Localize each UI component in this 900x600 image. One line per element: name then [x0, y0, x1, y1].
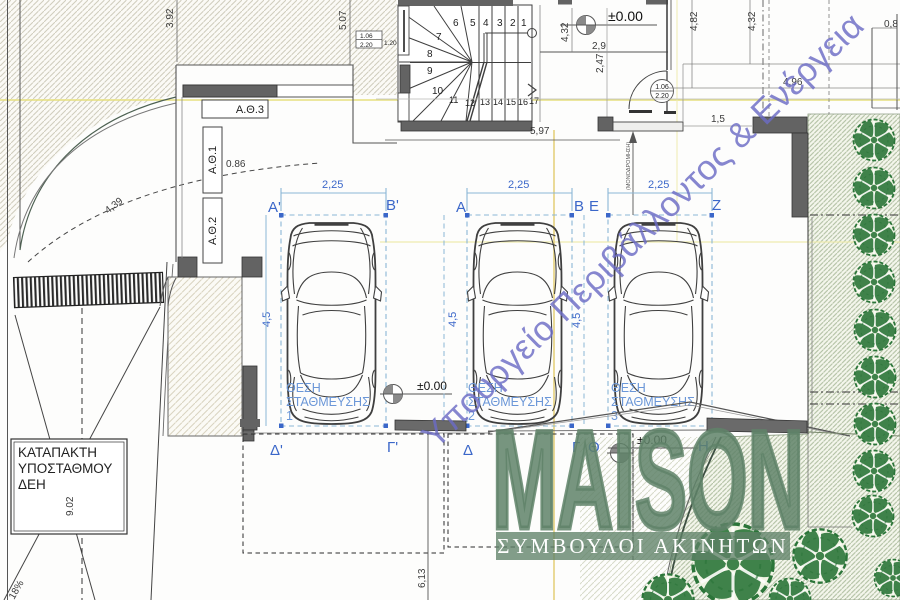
svg-text:7: 7: [436, 32, 442, 43]
svg-text:ΣΤΑΘΜΕΥΣΗΣ: ΣΤΑΘΜΕΥΣΗΣ: [286, 395, 370, 409]
svg-text:12: 12: [465, 98, 475, 108]
svg-text:(ΜΟΝΟΔΡΟΜΗΣΗ): (ΜΟΝΟΔΡΟΜΗΣΗ): [626, 142, 632, 190]
svg-text:1.20: 1.20: [384, 40, 397, 47]
svg-text:13: 13: [480, 97, 490, 107]
svg-text:ΥΠΟΣΤΑΘΜΟΥ: ΥΠΟΣΤΑΘΜΟΥ: [18, 461, 112, 476]
svg-text:5,97: 5,97: [530, 126, 550, 137]
svg-text:Β': Β': [386, 197, 399, 214]
svg-text:Δ': Δ': [270, 442, 283, 459]
svg-text:Α': Α': [268, 199, 281, 216]
svg-text:3.92: 3.92: [165, 8, 176, 28]
svg-text:4,32: 4,32: [747, 11, 758, 31]
svg-text:ΘΕΣΗ: ΘΕΣΗ: [286, 381, 321, 395]
svg-text:9: 9: [427, 66, 433, 77]
svg-text:9.02: 9.02: [65, 496, 76, 516]
svg-text:Α.Θ.2: Α.Θ.2: [207, 217, 219, 245]
svg-text:Ζ: Ζ: [712, 197, 721, 214]
svg-text:Α: Α: [456, 199, 466, 216]
svg-text:11: 11: [449, 95, 458, 105]
svg-text:Δ: Δ: [463, 442, 473, 459]
svg-text:4: 4: [483, 18, 489, 29]
svg-text:±0.00: ±0.00: [417, 379, 447, 393]
svg-text:ΔΕΗ: ΔΕΗ: [18, 477, 46, 492]
svg-text:2,47: 2,47: [595, 53, 606, 73]
svg-text:4,82: 4,82: [689, 11, 700, 31]
svg-text:17: 17: [529, 96, 539, 106]
svg-text:4,32: 4,32: [560, 22, 571, 42]
svg-text:5.07: 5.07: [338, 10, 349, 30]
svg-text:10: 10: [432, 86, 444, 97]
svg-text:1.06: 1.06: [360, 33, 373, 40]
svg-text:5: 5: [470, 18, 476, 29]
svg-text:±0.00: ±0.00: [608, 8, 643, 24]
svg-text:1: 1: [521, 18, 527, 29]
svg-text:Α.Θ.1: Α.Θ.1: [207, 146, 219, 174]
svg-text:2: 2: [510, 18, 516, 29]
svg-text:Ε: Ε: [589, 198, 599, 215]
svg-text:6,13: 6,13: [417, 568, 428, 588]
svg-text:14: 14: [493, 97, 503, 107]
svg-text:Α.Θ.3: Α.Θ.3: [236, 104, 264, 116]
svg-text:15: 15: [506, 97, 516, 107]
svg-text:6: 6: [453, 18, 459, 29]
svg-text:2,25: 2,25: [508, 179, 529, 191]
svg-text:2.20: 2.20: [360, 42, 373, 49]
svg-text:Γ': Γ': [387, 439, 398, 456]
svg-text:ΣΥΜΒΟΥΛΟΙ ΑΚΙΝΗΤΩΝ: ΣΥΜΒΟΥΛΟΙ ΑΚΙΝΗΤΩΝ: [497, 534, 788, 558]
svg-text:3: 3: [497, 18, 503, 29]
svg-text:1.06: 1.06: [655, 84, 669, 91]
svg-text:1: 1: [286, 409, 293, 423]
svg-text:2,9: 2,9: [592, 41, 606, 52]
svg-text:16: 16: [518, 97, 528, 107]
svg-text:4,5: 4,5: [261, 312, 273, 327]
svg-text:ΚΑΤΑΠΑΚΤΗ: ΚΑΤΑΠΑΚΤΗ: [18, 445, 97, 460]
svg-text:2,25: 2,25: [322, 179, 343, 191]
svg-text:4,5: 4,5: [447, 312, 459, 327]
svg-text:0.86: 0.86: [226, 159, 246, 170]
svg-text:Β: Β: [574, 198, 584, 215]
svg-text:ΘΕΣΗ: ΘΕΣΗ: [611, 381, 646, 395]
svg-text:8: 8: [427, 49, 433, 60]
svg-text:0,8: 0,8: [884, 19, 898, 30]
